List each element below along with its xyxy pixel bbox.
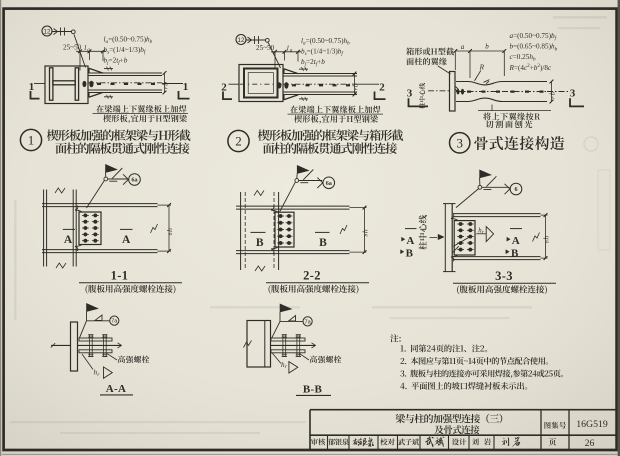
svg-text:25~50: 25~50 — [256, 44, 275, 52]
svg-text:7a: 7a — [304, 320, 311, 326]
svg-text:R: R — [479, 63, 485, 71]
svg-text:a: a — [290, 48, 293, 54]
svg-text:3: 3 — [456, 135, 463, 150]
svg-text:1: 1 — [28, 133, 35, 148]
svg-text:A: A — [406, 235, 414, 247]
svg-text:3: 3 — [570, 88, 576, 100]
svg-text:1: 1 — [29, 81, 35, 93]
svg-text:B-B: B-B — [303, 383, 323, 395]
svg-text:b: b — [364, 234, 370, 237]
svg-text:h: h — [361, 229, 370, 233]
svg-text:A: A — [512, 235, 520, 247]
svg-text:2-2: 2-2 — [303, 269, 321, 283]
svg-text:25~50: 25~50 — [63, 44, 82, 52]
svg-text:A-A: A-A — [106, 383, 126, 395]
svg-text:B: B — [406, 247, 414, 259]
svg-text:b: b — [545, 240, 551, 243]
svg-text:6a: 6a — [326, 180, 332, 187]
svg-text:3: 3 — [407, 88, 413, 100]
svg-text:6: 6 — [514, 186, 517, 193]
svg-text:R=(4c2+b2)/8c: R=(4c2+b2)/8c — [509, 63, 552, 72]
svg-text:12: 12 — [44, 28, 51, 35]
svg-text:B: B — [256, 237, 264, 249]
svg-text:12: 12 — [238, 37, 245, 44]
svg-text:1: 1 — [183, 81, 189, 93]
svg-text:r: r — [482, 231, 484, 236]
svg-text:A: A — [64, 234, 73, 246]
svg-text:l: l — [287, 44, 289, 52]
svg-text:6a: 6a — [131, 177, 137, 184]
svg-text:h: h — [542, 236, 551, 240]
svg-text:B: B — [319, 237, 327, 249]
svg-text:A: A — [122, 234, 131, 246]
svg-text:b: b — [485, 43, 489, 51]
svg-text:16G519: 16G519 — [576, 419, 608, 430]
svg-text:7a: 7a — [111, 319, 118, 325]
svg-text:2: 2 — [235, 134, 242, 149]
svg-text:2: 2 — [379, 82, 385, 94]
svg-text:l: l — [84, 44, 86, 52]
svg-text:26: 26 — [585, 438, 595, 449]
svg-text:B: B — [511, 247, 519, 259]
svg-text:1-1: 1-1 — [111, 269, 129, 283]
svg-text:h: h — [165, 228, 174, 232]
svg-text:3-3: 3-3 — [495, 269, 513, 283]
svg-text:b: b — [168, 232, 174, 235]
svg-text:a: a — [461, 43, 465, 51]
svg-text:b: b — [351, 83, 360, 87]
